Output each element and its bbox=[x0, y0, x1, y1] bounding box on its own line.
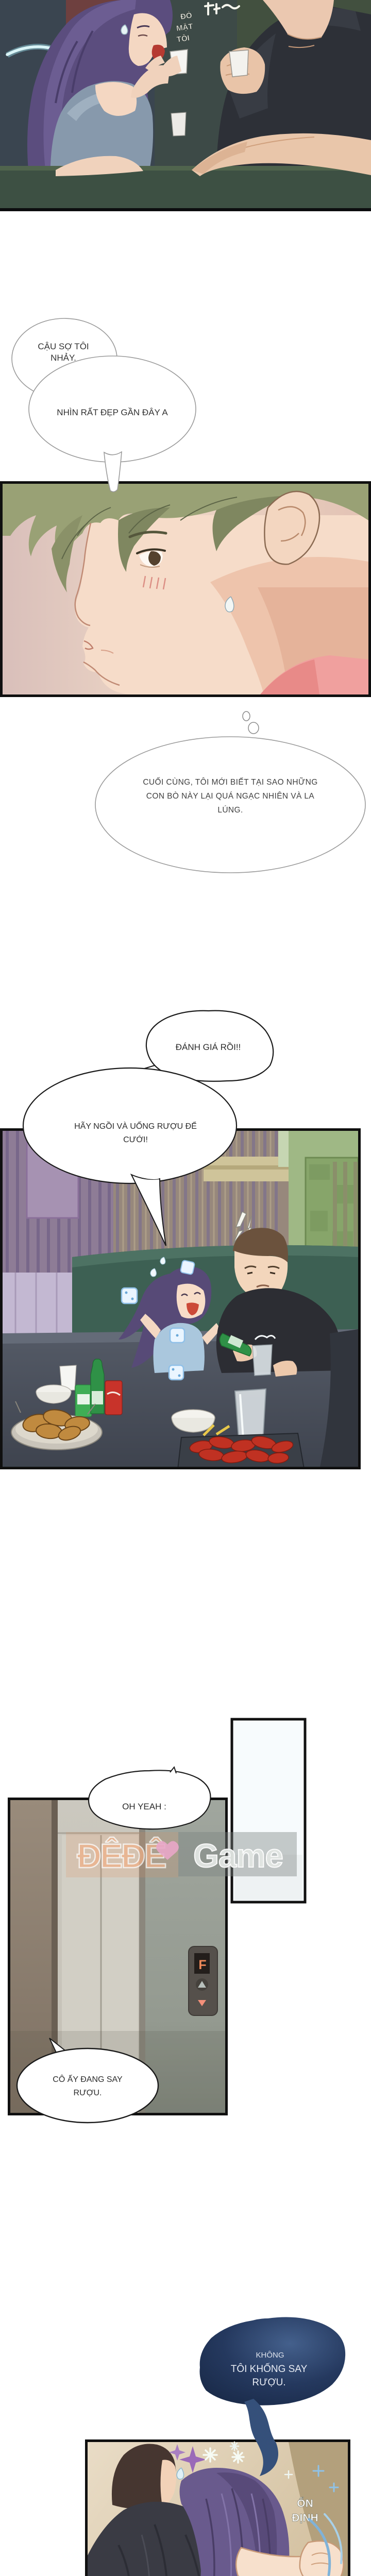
svg-text:TÔI KHỐNG SAY: TÔI KHỐNG SAY bbox=[231, 2363, 308, 2375]
svg-text:CON BÒ NÀY LẠI QUÁ NGẠC NHIÊN: CON BÒ NÀY LẠI QUÁ NGẠC NHIÊN VÀ LA bbox=[146, 792, 315, 801]
svg-text:RƯỢU.: RƯỢU. bbox=[252, 2377, 285, 2388]
svg-text:ĐÁNH GIÁ RỒI!!: ĐÁNH GIÁ RỒI!! bbox=[176, 1042, 241, 1052]
svg-text:CÔ ẤY ĐANG SAY: CÔ ẤY ĐANG SAY bbox=[53, 2074, 123, 2084]
svg-text:F: F bbox=[198, 1958, 206, 1972]
svg-text:LÚNG.: LÚNG. bbox=[217, 806, 243, 815]
svg-text:TÔI: TÔI bbox=[176, 33, 190, 44]
svg-text:ĐỊNH: ĐỊNH bbox=[292, 2512, 318, 2524]
svg-text:CUỐI CÙNG, TÔI MỚI BIẾT TẠI SA: CUỐI CÙNG, TÔI MỚI BIẾT TẠI SAO NHỮNG bbox=[143, 777, 317, 787]
svg-text:OH YEAH :: OH YEAH : bbox=[122, 1802, 166, 1811]
svg-text:ỔN: ỔN bbox=[297, 2497, 313, 2510]
svg-text:KHÔNG: KHÔNG bbox=[256, 2351, 284, 2360]
svg-text:Game: Game bbox=[193, 1837, 283, 1874]
svg-text:HÃY NGỒI VÀ UỐNG RƯỢU ĐỂ: HÃY NGỒI VÀ UỐNG RƯỢU ĐỂ bbox=[74, 1121, 197, 1131]
svg-text:CẬU SỢ TÔI: CẬU SỢ TÔI bbox=[38, 342, 89, 351]
svg-text:ĐÊĐÊ: ĐÊĐÊ bbox=[77, 1837, 165, 1875]
svg-text:ĐỎ: ĐỎ bbox=[180, 11, 193, 22]
svg-text:NHẢY.: NHẢY. bbox=[50, 353, 76, 363]
svg-text:RƯỢU.: RƯỢU. bbox=[74, 2089, 102, 2097]
svg-text:NHÌN RẤT ĐẸP GẦN ĐÂY A: NHÌN RẤT ĐẸP GẦN ĐÂY A bbox=[57, 408, 168, 417]
svg-text:CƯỚI!: CƯỚI! bbox=[123, 1134, 148, 1144]
